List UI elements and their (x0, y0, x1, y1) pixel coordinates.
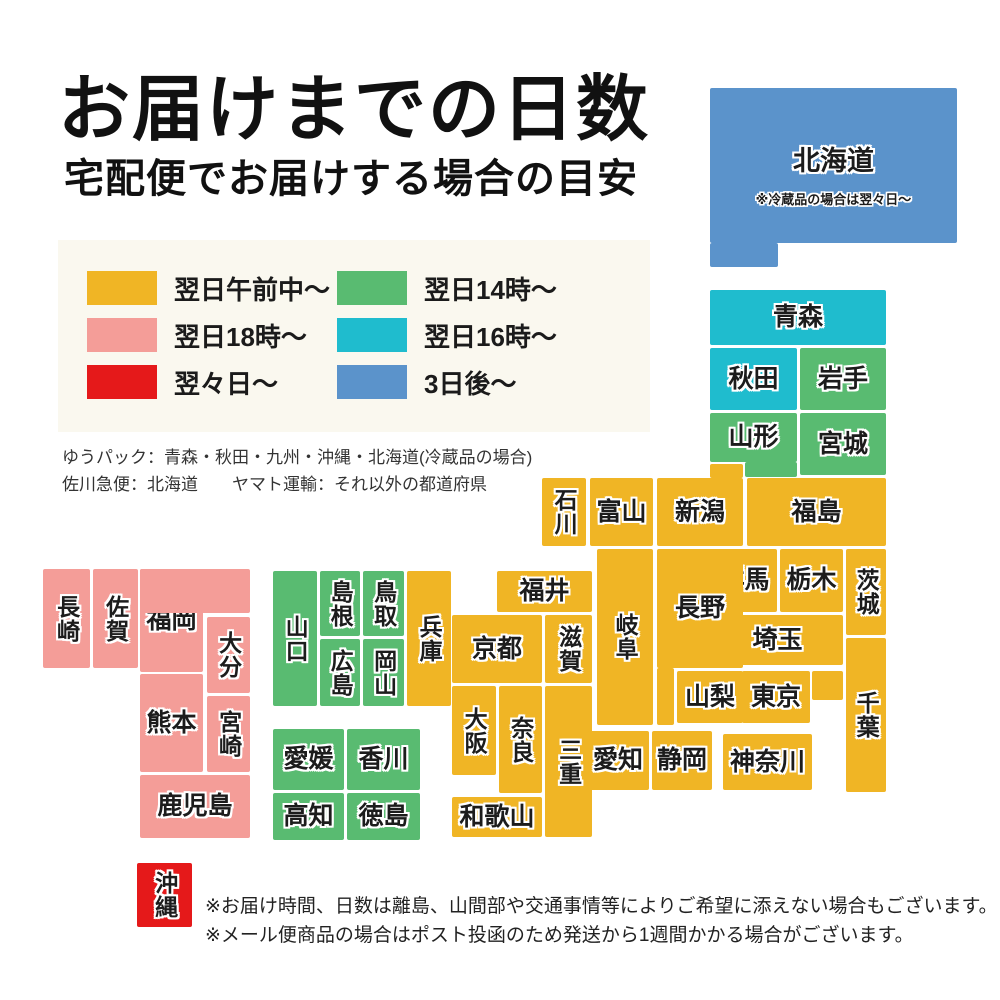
pref-kyoto: 京都 (452, 615, 542, 683)
pref-miyagi: 宮城 (800, 413, 886, 475)
pref-hokkaido: 北海道※冷蔵品の場合は翌々日〜 (710, 88, 957, 243)
pref-nagasaki-label: 長崎 (54, 595, 78, 643)
pref-nagasaki: 長崎 (43, 569, 90, 668)
pref-fukuoka-part1 (140, 569, 250, 613)
pref-tottori-label: 鳥取 (371, 580, 395, 628)
pref-iwate-label: 岩手 (818, 366, 868, 392)
pref-wakayama-label: 和歌山 (459, 804, 534, 830)
pref-aomori-label: 青森 (773, 304, 823, 330)
pref-nagano-part1 (657, 668, 674, 725)
bottom-notes: ※お届け時間、日数は離島、山間部や交通事情等によりご希望に添えない場合もございま… (205, 893, 998, 950)
pref-okayama: 岡山 (363, 639, 404, 706)
pref-oita: 大分 (207, 617, 250, 693)
pref-yamaguchi: 山口 (273, 571, 317, 706)
pref-fukui: 福井 (497, 571, 592, 612)
pref-iwate: 岩手 (800, 348, 886, 410)
pref-tokushima: 徳島 (347, 793, 420, 840)
pref-niigata: 新潟 (657, 478, 743, 546)
pref-nagano-label: 長野 (675, 595, 725, 621)
pref-kagawa-label: 香川 (358, 746, 408, 772)
pref-toyama: 富山 (590, 478, 653, 546)
pref-kagoshima-label: 鹿児島 (157, 793, 232, 819)
pref-ehime-label: 愛媛 (283, 746, 333, 772)
pref-chiba-label: 千葉 (854, 691, 878, 739)
pref-akita-label: 秋田 (728, 366, 778, 392)
pref-fukushima: 福島 (747, 478, 886, 546)
pref-tottori: 鳥取 (363, 571, 404, 636)
bottom-note-line-2: ※メール便商品の場合はポスト投函のため発送から1週間かかる場合がございます。 (205, 922, 998, 951)
pref-osaka-label: 大阪 (462, 707, 486, 755)
pref-kanagawa-label: 神奈川 (730, 749, 805, 775)
pref-ibaraki: 茨城 (846, 549, 886, 635)
pref-hiroshima-label: 広島 (328, 649, 352, 697)
pref-yamagata-part1 (745, 462, 797, 477)
pref-wakayama: 和歌山 (452, 797, 542, 837)
pref-miyagi-label: 宮城 (818, 431, 868, 457)
pref-hokkaido-part1 (710, 243, 778, 267)
pref-niigata-part1 (710, 464, 743, 478)
pref-aichi: 愛知 (587, 731, 649, 790)
pref-shizuoka: 静岡 (652, 731, 712, 790)
pref-kochi: 高知 (273, 793, 344, 840)
pref-kagawa: 香川 (347, 729, 420, 790)
pref-hokkaido-label: 北海道 (793, 147, 874, 175)
pref-chiba: 千葉 (846, 638, 886, 792)
pref-aomori: 青森 (710, 290, 886, 345)
pref-shiga-label: 滋賀 (556, 625, 580, 673)
pref-miyazaki: 宮崎 (207, 696, 250, 772)
pref-saitama-label: 埼玉 (752, 627, 802, 653)
pref-fukui-label: 福井 (519, 578, 569, 604)
pref-kyoto-label: 京都 (472, 636, 522, 662)
japan-map: 北海道※冷蔵品の場合は翌々日〜青森秋田岩手山形宮城新潟石川富山福島群馬栃木茨城埼… (0, 0, 1000, 1000)
pref-fukushima-label: 福島 (791, 499, 841, 525)
pref-kochi-label: 高知 (283, 803, 333, 829)
pref-kumamoto-label: 熊本 (146, 710, 196, 736)
pref-yamaguchi-label: 山口 (283, 615, 307, 663)
pref-hyogo-label: 兵庫 (417, 615, 441, 663)
pref-tokyo: 東京 (742, 671, 810, 723)
pref-okinawa: 沖縄 (137, 863, 192, 927)
pref-yamagata-label: 山形 (728, 424, 778, 450)
pref-kagoshima: 鹿児島 (140, 775, 250, 838)
pref-oita-label: 大分 (216, 631, 240, 679)
pref-aichi-label: 愛知 (593, 747, 643, 773)
pref-gifu: 岐阜 (597, 549, 653, 725)
pref-okayama-label: 岡山 (371, 649, 395, 697)
pref-saga-label: 佐賀 (103, 595, 127, 643)
pref-ishikawa: 石川 (542, 478, 586, 546)
pref-shizuoka-label: 静岡 (657, 747, 707, 773)
pref-shimane: 島根 (320, 571, 360, 636)
pref-hokkaido-note: ※冷蔵品の場合は翌々日〜 (756, 189, 912, 208)
pref-tochigi: 栃木 (780, 549, 843, 612)
pref-nara-label: 奈良 (508, 716, 532, 764)
pref-yamanashi: 山梨 (677, 671, 743, 723)
pref-kanagawa: 神奈川 (723, 734, 812, 790)
pref-saga: 佐賀 (93, 569, 138, 668)
pref-ehime: 愛媛 (273, 729, 344, 790)
pref-toyama-label: 富山 (596, 499, 646, 525)
pref-mie-label: 三重 (556, 738, 580, 786)
pref-miyazaki-label: 宮崎 (216, 710, 240, 758)
pref-tokyo-label: 東京 (751, 684, 801, 710)
pref-shimane-label: 島根 (328, 580, 352, 628)
bottom-note-line-1: ※お届け時間、日数は離島、山間部や交通事情等によりご希望に添えない場合もございま… (205, 893, 998, 922)
pref-tochigi-label: 栃木 (786, 567, 836, 593)
pref-hiroshima: 広島 (320, 639, 360, 706)
pref-mie: 三重 (545, 686, 592, 837)
pref-okinawa-label: 沖縄 (152, 871, 176, 919)
pref-shiga: 滋賀 (545, 615, 592, 683)
pref-nagano: 長野 (657, 549, 743, 668)
pref-ibaraki-label: 茨城 (854, 568, 878, 616)
delivery-days-infographic: お届けまでの日数 宅配便でお届けする場合の目安 翌日午前中〜 翌日18時〜 翌々… (0, 0, 1000, 1000)
pref-nara: 奈良 (499, 686, 542, 793)
pref-osaka: 大阪 (452, 686, 496, 775)
pref-tokyo-part1 (812, 671, 843, 700)
pref-niigata-label: 新潟 (675, 499, 725, 525)
pref-yamagata: 山形 (710, 413, 797, 462)
pref-hyogo: 兵庫 (407, 571, 451, 706)
pref-tokushima-label: 徳島 (358, 803, 408, 829)
pref-kumamoto: 熊本 (140, 674, 203, 772)
pref-gifu-label: 岐阜 (613, 613, 637, 661)
pref-yamanashi-label: 山梨 (685, 684, 735, 710)
pref-ishikawa-label: 石川 (552, 488, 576, 536)
pref-akita: 秋田 (710, 348, 797, 410)
